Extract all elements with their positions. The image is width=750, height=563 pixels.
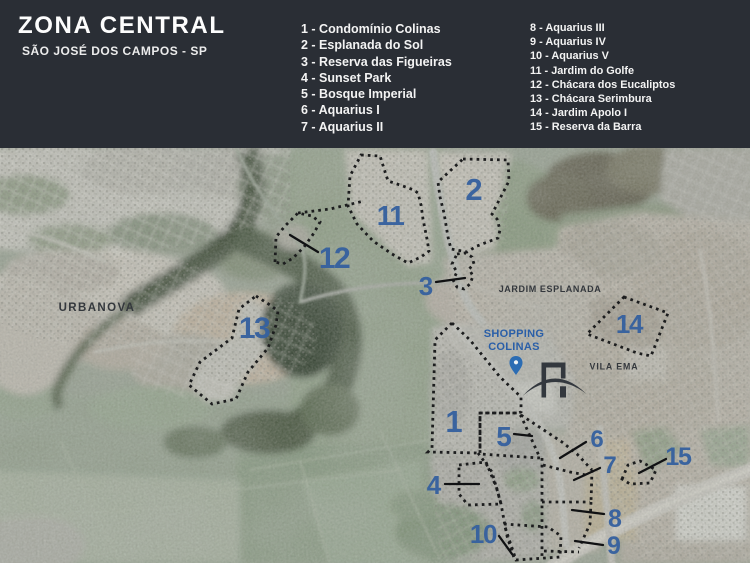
svg-text:7: 7 [603, 452, 616, 479]
svg-text:15: 15 [665, 443, 692, 471]
svg-text:SHOPPING: SHOPPING [484, 328, 544, 340]
svg-text:2: 2 [465, 172, 482, 207]
svg-text:4: 4 [427, 470, 442, 500]
svg-text:JARDIM ESPLANADA: JARDIM ESPLANADA [499, 284, 602, 294]
svg-text:COLINAS: COLINAS [488, 341, 540, 353]
svg-text:URBANOVA: URBANOVA [59, 302, 136, 314]
svg-text:5: 5 [496, 421, 512, 452]
svg-text:6: 6 [590, 426, 603, 453]
svg-text:13: 13 [239, 312, 270, 345]
svg-text:VILA EMA: VILA EMA [590, 362, 639, 372]
svg-text:3: 3 [419, 271, 433, 301]
svg-text:12: 12 [319, 242, 350, 275]
svg-text:11: 11 [377, 200, 405, 231]
svg-text:8: 8 [608, 505, 622, 533]
svg-text:1: 1 [445, 404, 462, 439]
svg-text:10: 10 [470, 519, 497, 549]
svg-text:9: 9 [607, 532, 621, 560]
svg-text:14: 14 [616, 309, 644, 339]
